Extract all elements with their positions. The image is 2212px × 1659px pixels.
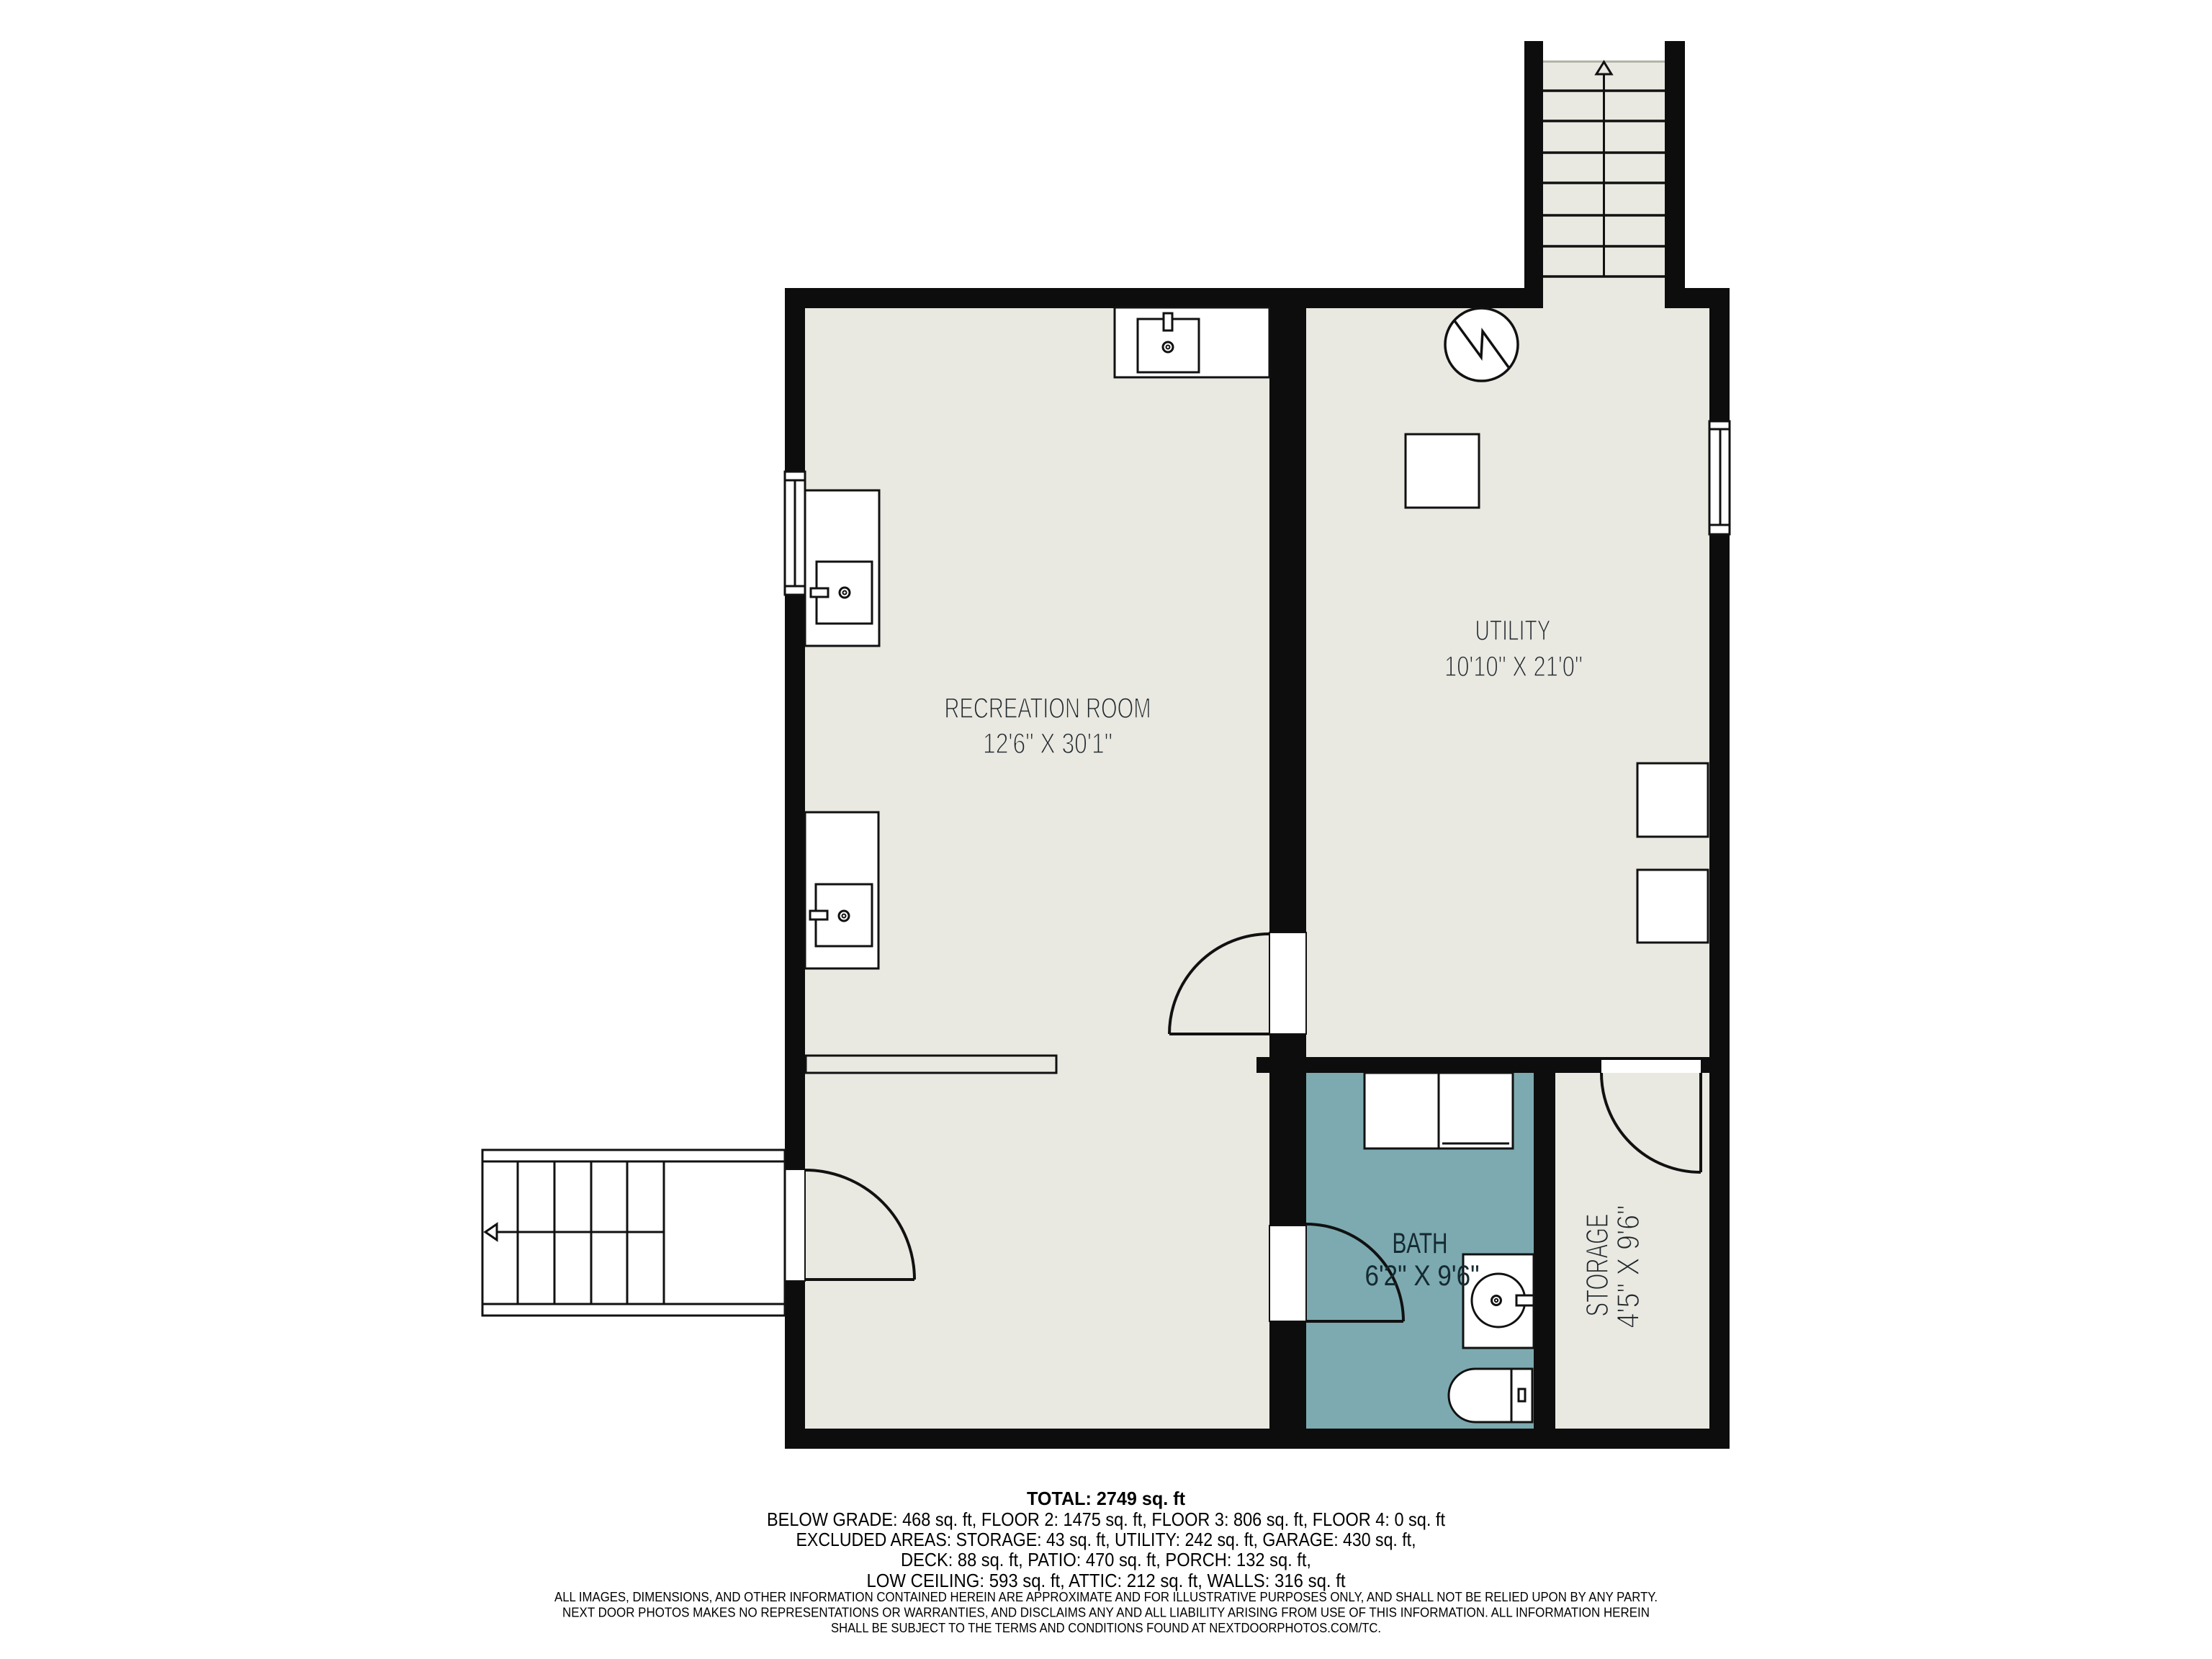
svg-text:LOW CEILING: 593 sq. ft, ATTIC: LOW CEILING: 593 sq. ft, ATTIC: 212 sq. … <box>867 1570 1346 1591</box>
svg-text:SHALL BE SUBJECT TO THE TERMS: SHALL BE SUBJECT TO THE TERMS AND CONDIT… <box>831 1621 1381 1635</box>
svg-text:NEXT DOOR PHOTOS MAKES NO REPR: NEXT DOOR PHOTOS MAKES NO REPRESENTATION… <box>562 1606 1650 1620</box>
svg-text:12'6" X 30'1": 12'6" X 30'1" <box>983 728 1112 760</box>
svg-text:ALL IMAGES, DIMENSIONS, AND OT: ALL IMAGES, DIMENSIONS, AND OTHER INFORM… <box>554 1590 1658 1604</box>
svg-text:RECREATION ROOM: RECREATION ROOM <box>945 693 1151 724</box>
svg-text:BATH: BATH <box>1393 1228 1448 1259</box>
svg-text:STORAGE: STORAGE <box>1580 1214 1615 1317</box>
svg-text:DECK: 88 sq. ft, PATIO: 470 sq: DECK: 88 sq. ft, PATIO: 470 sq. ft, PORC… <box>901 1549 1311 1570</box>
svg-text:BELOW GRADE: 468 sq. ft, FLOOR: BELOW GRADE: 468 sq. ft, FLOOR 2: 1475 s… <box>767 1509 1446 1530</box>
svg-text:10'10" X 21'0": 10'10" X 21'0" <box>1444 651 1583 683</box>
svg-text:6'2" X 9'6": 6'2" X 9'6" <box>1365 1260 1480 1292</box>
svg-text:4'5" X 9'6": 4'5" X 9'6" <box>1611 1205 1646 1328</box>
svg-text:UTILITY: UTILITY <box>1475 615 1551 647</box>
svg-text:TOTAL: 2749 sq. ft: TOTAL: 2749 sq. ft <box>1027 1488 1185 1509</box>
svg-text:EXCLUDED AREAS: STORAGE: 43 sq: EXCLUDED AREAS: STORAGE: 43 sq. ft, UTIL… <box>796 1529 1416 1550</box>
